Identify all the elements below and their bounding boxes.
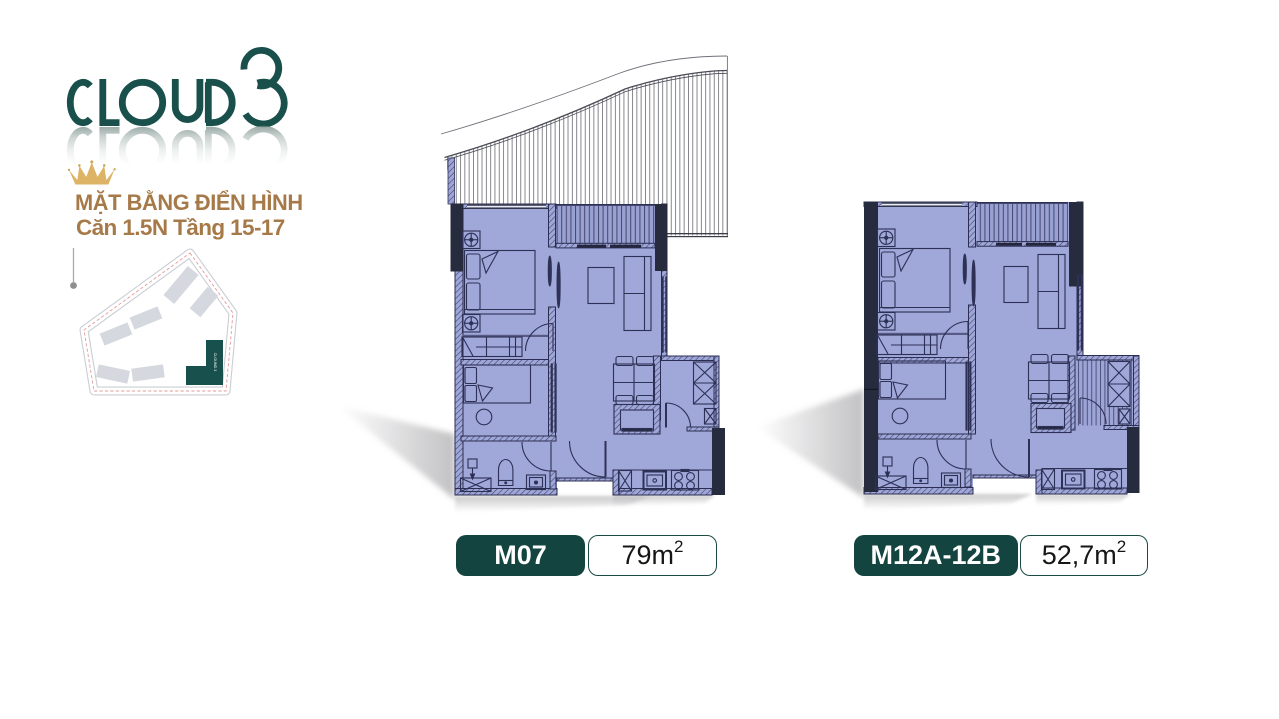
svg-text:CLOUND 3: CLOUND 3 [213,353,217,372]
